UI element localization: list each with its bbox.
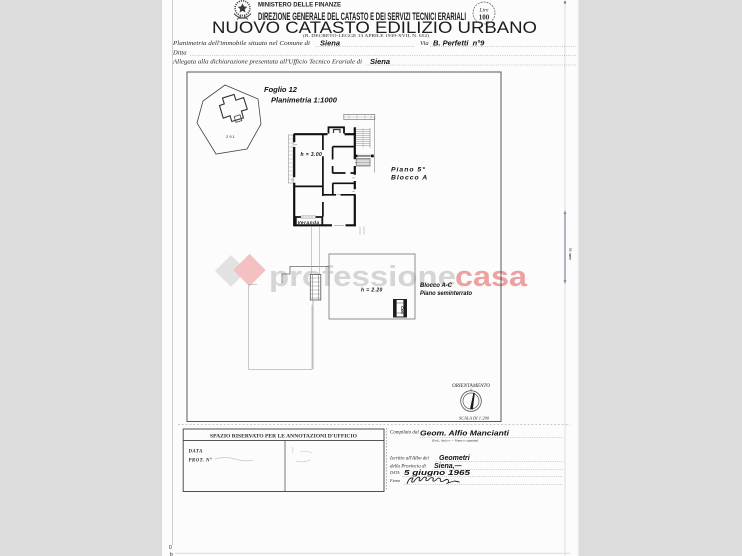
- svg-text:Foglio 12: Foglio 12: [264, 85, 298, 94]
- svg-text:50 metri: 50 metri: [568, 248, 572, 260]
- svg-text:2 9 1: 2 9 1: [226, 134, 236, 139]
- svg-text:Iscritto all'Albo dei: Iscritto all'Albo dei: [389, 457, 429, 462]
- svg-text:Blocco A: Blocco A: [391, 175, 428, 182]
- svg-text:Ditta: Ditta: [172, 50, 187, 57]
- svg-text:casa: casa: [455, 261, 528, 293]
- svg-text:della Provincia di: della Provincia di: [390, 465, 427, 470]
- svg-text:Compilato dal: Compilato dal: [390, 431, 419, 436]
- svg-text:Piano 5°: Piano 5°: [391, 166, 426, 174]
- svg-text:Via: Via: [420, 40, 429, 47]
- svg-text:B. Perfetti n°9: B. Perfetti n°9: [433, 39, 485, 48]
- svg-text:DATA: DATA: [389, 470, 400, 475]
- svg-text:SPAZIO RISERVATO PER LE ANNOTA: SPAZIO RISERVATO PER LE ANNOTAZIONI D'UF…: [210, 434, 358, 440]
- svg-text:b: b: [170, 552, 173, 556]
- svg-text:Geom. Alfio Mancianti: Geom. Alfio Mancianti: [420, 429, 510, 438]
- svg-text:MINISTERO DELLE FINANZE: MINISTERO DELLE FINANZE: [258, 2, 341, 9]
- svg-text:Siena: Siena: [320, 39, 340, 48]
- svg-text:Geometri: Geometri: [439, 455, 471, 462]
- svg-text:Veranda: Veranda: [298, 220, 320, 225]
- svg-text:0: 0: [169, 545, 172, 551]
- svg-text:Piano seminterrato: Piano seminterrato: [420, 290, 472, 297]
- svg-text:Siena: Siena: [370, 57, 390, 66]
- svg-text:Cant.: Cant.: [400, 306, 404, 315]
- svg-text:SCALA DI 1:200: SCALA DI 1:200: [459, 416, 490, 421]
- svg-text:Planimetria 1:1000: Planimetria 1:1000: [271, 96, 338, 105]
- svg-text:h = 2.20: h = 2.20: [361, 288, 383, 294]
- svg-text:PROT. N°: PROT. N°: [189, 459, 213, 464]
- svg-text:ORIENTAMENTO: ORIENTAMENTO: [452, 383, 490, 389]
- svg-text:h = 3.00: h = 3.00: [301, 152, 323, 158]
- svg-text:100: 100: [479, 14, 490, 22]
- svg-text:Planimetria dell'immobile situ: Planimetria dell'immobile situato nel Co…: [172, 40, 310, 47]
- svg-text:Blocco A-C: Blocco A-C: [420, 282, 453, 289]
- svg-text:Firma: Firma: [389, 478, 400, 483]
- svg-text:Siena,—: Siena,—: [434, 463, 463, 470]
- svg-text:DATA: DATA: [188, 450, 203, 455]
- svg-text:Allegata alla dichiarazione pr: Allegata alla dichiarazione presentata a…: [172, 59, 362, 66]
- svg-text:5 giugno 1965: 5 giugno 1965: [404, 470, 470, 477]
